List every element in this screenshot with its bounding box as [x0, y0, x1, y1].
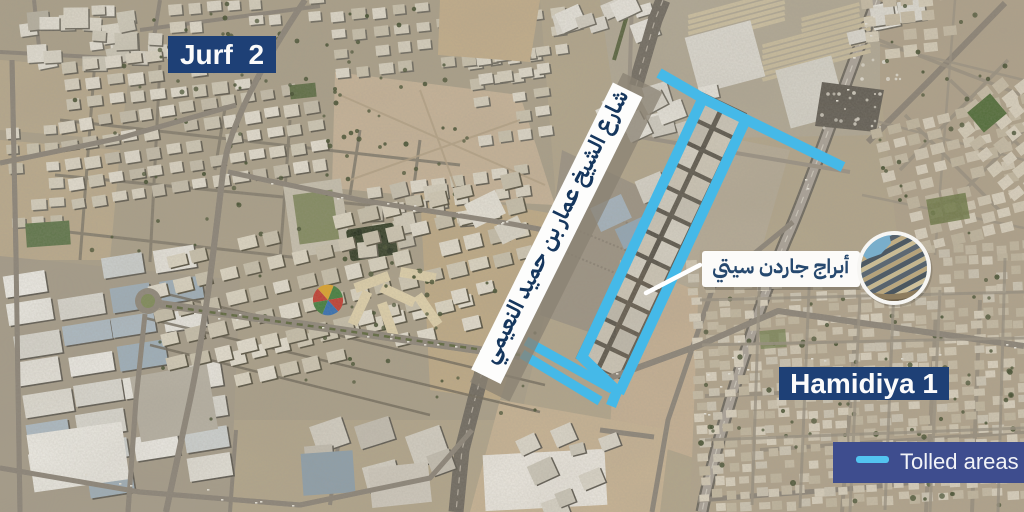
svg-text:Jurf 2: Jurf 2 [180, 39, 264, 70]
svg-text:Hamidiya 1: Hamidiya 1 [790, 368, 938, 399]
svg-text:Tolled areas: Tolled areas [900, 449, 1019, 474]
